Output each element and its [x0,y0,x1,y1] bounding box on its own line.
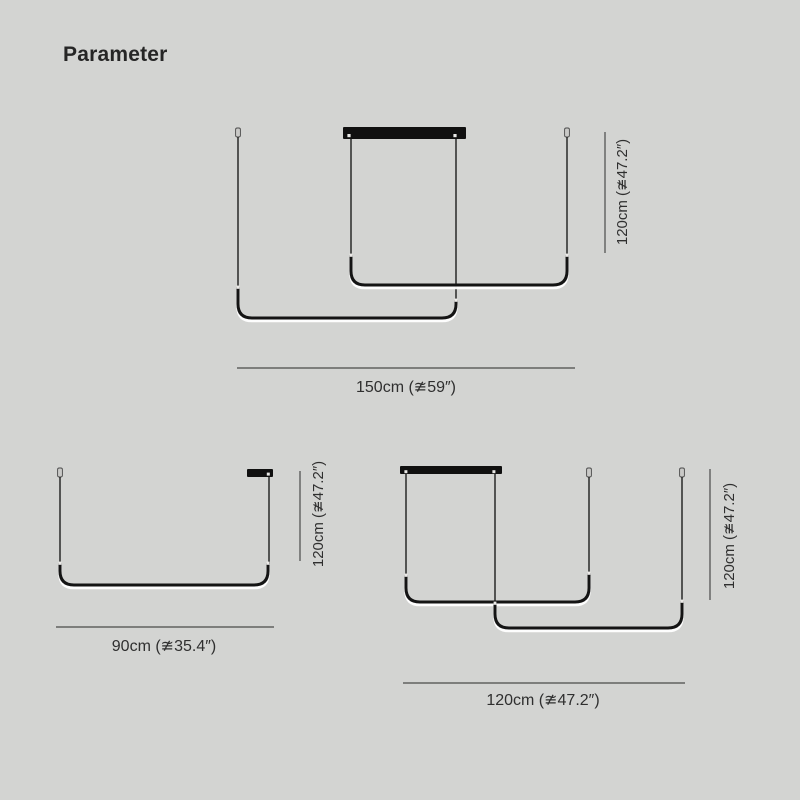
pendant-90cm-drawing [56,468,300,627]
lamp-diagrams-graphic [0,0,800,800]
led-tube [60,563,268,585]
canopy-bar [343,127,466,139]
led-tube-upper [406,573,589,602]
led-tube-upper [351,255,567,285]
led-tube-lower [238,287,456,318]
width-dimension-label: 90cm (≇35.4″) [112,636,216,656]
pendant-120cm-drawing [400,466,710,683]
ceiling-connector [680,468,685,477]
width-dimension-label: 120cm (≇47.2″) [486,690,599,710]
height-dimension-label: 120cm (≇47.2″) [309,461,327,567]
canopy-bar [400,466,502,474]
parameter-sheet: Parameter [0,0,800,800]
width-dimension-label: 150cm (≇59″) [356,377,456,397]
ceiling-connector [58,468,63,477]
pendant-150cm-drawing [236,127,605,368]
ceiling-connector [565,128,570,137]
ceiling-connector [236,128,241,137]
ceiling-connector [587,468,592,477]
height-dimension-label: 120cm (≇47.2″) [720,483,738,589]
height-dimension-label: 120cm (≇47.2″) [613,139,631,245]
